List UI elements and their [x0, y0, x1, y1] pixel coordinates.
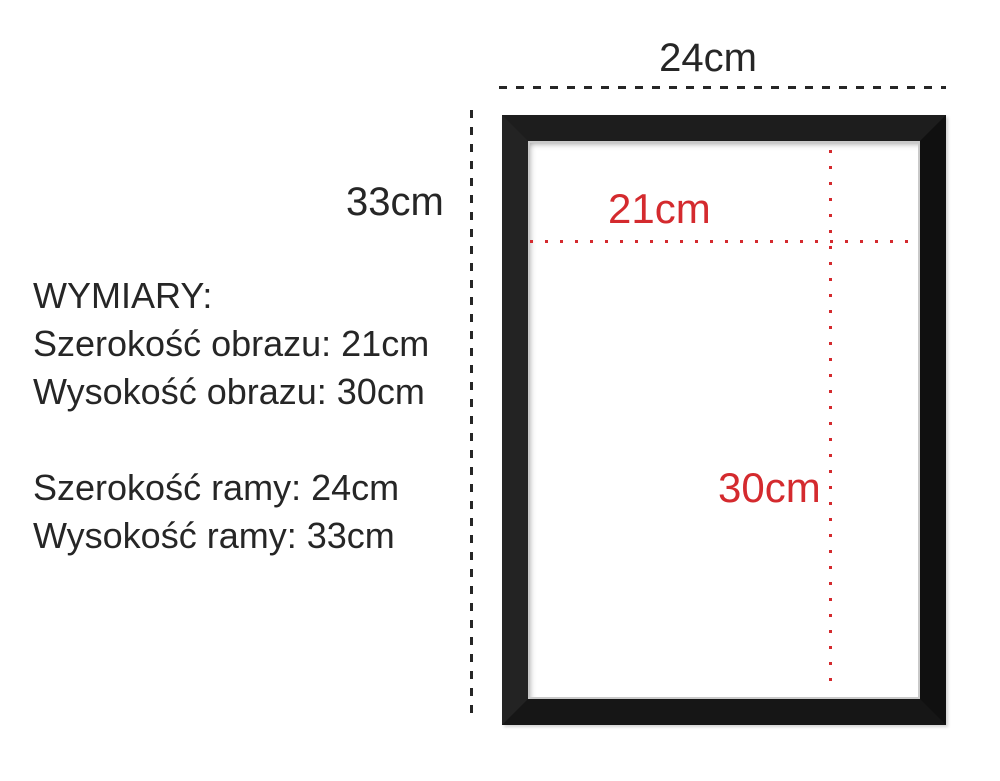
spec-line-spacer — [33, 416, 429, 464]
frame-height-label: 33cm — [346, 182, 444, 222]
specs-heading: WYMIARY: — [33, 272, 429, 320]
frame-width-label: 24cm — [659, 38, 757, 78]
frame-width-dashed-line — [499, 86, 946, 89]
specs-text-block: WYMIARY: Szerokość obrazu: 21cm Wysokość… — [33, 272, 429, 560]
picture-height-label: 30cm — [718, 467, 821, 509]
frame-dimension-diagram: 24cm 33cm 21cm 30cm WYMIARY: Szerokość o… — [0, 0, 1000, 781]
frame-height-dashed-line — [470, 110, 473, 722]
picture-width-label: 21cm — [608, 188, 711, 230]
spec-line-picture-height: Wysokość obrazu: 30cm — [33, 368, 429, 416]
spec-line-frame-width: Szerokość ramy: 24cm — [33, 464, 429, 512]
picture-frame: 21cm 30cm — [502, 115, 946, 725]
picture-height-dotted-line — [829, 150, 832, 686]
picture-width-dotted-line — [530, 240, 918, 243]
spec-line-frame-height: Wysokość ramy: 33cm — [33, 512, 429, 560]
picture-area: 21cm 30cm — [528, 141, 920, 699]
spec-line-picture-width: Szerokość obrazu: 21cm — [33, 320, 429, 368]
